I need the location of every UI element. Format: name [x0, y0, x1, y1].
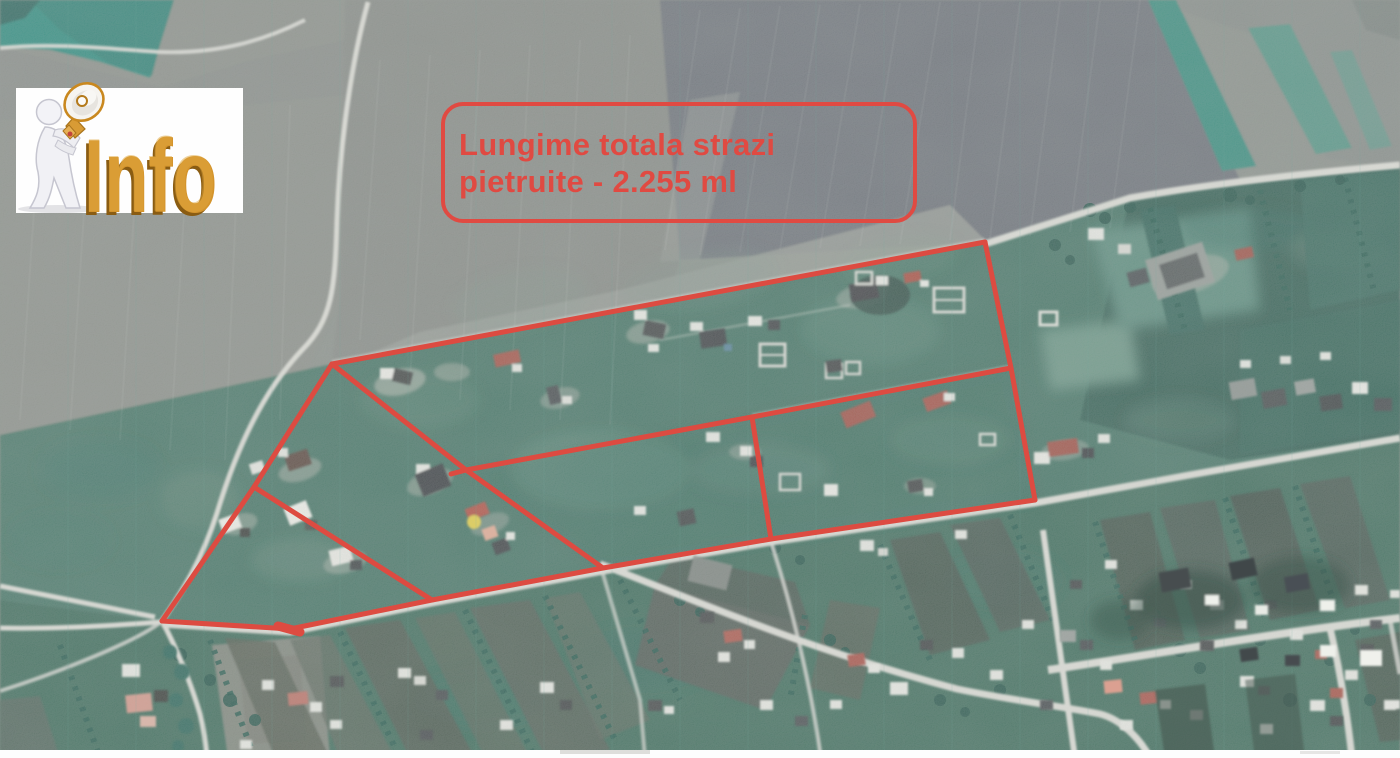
svg-text:Lungime totala strazi: Lungime totala strazi [459, 127, 775, 162]
svg-text:Info: Info [84, 117, 215, 233]
svg-text:pietruite - 2.255 ml: pietruite - 2.255 ml [459, 164, 737, 199]
